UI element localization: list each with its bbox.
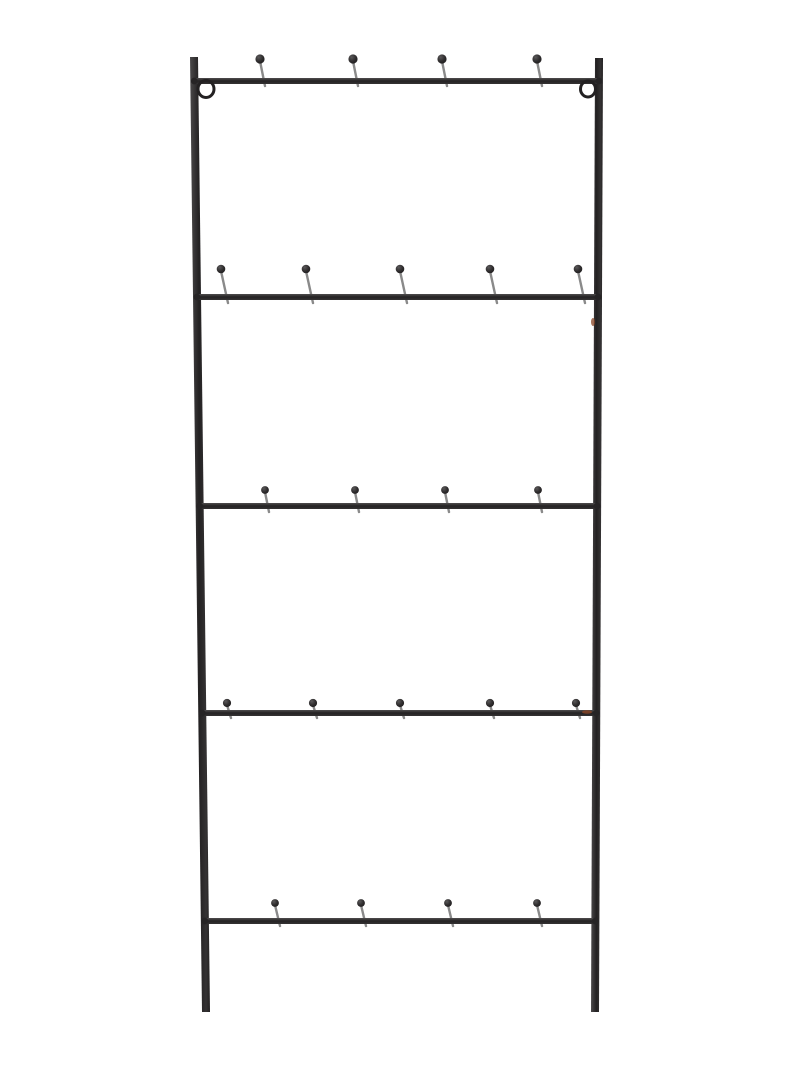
weld-cap: [596, 78, 603, 85]
rust-mark: [591, 318, 595, 326]
hook-ball: [437, 54, 446, 63]
hook-ball: [486, 265, 495, 274]
hook-ball: [534, 486, 542, 494]
hook-ball: [302, 265, 311, 274]
weld-cap: [592, 918, 599, 925]
hook-ball: [357, 899, 365, 907]
hook-ball: [396, 265, 405, 274]
hook-ball: [348, 54, 357, 63]
hook-bar-3: [198, 503, 599, 509]
hook-ball: [223, 699, 231, 707]
hook-ball: [351, 486, 359, 494]
weld-cap: [201, 918, 208, 925]
weld-cap: [191, 78, 198, 85]
hook-ball: [486, 699, 494, 707]
left-rail: [190, 57, 210, 1012]
hook-ball: [532, 54, 541, 63]
hook-ball: [217, 265, 226, 274]
hook-ball: [261, 486, 269, 494]
hook-bar-5: [203, 918, 598, 924]
weld-cap: [196, 503, 203, 510]
hook-bar-1: [192, 78, 601, 84]
weld-cap: [594, 503, 601, 510]
right-rail: [591, 58, 603, 1012]
weld-cap: [593, 710, 600, 717]
hook-ball: [574, 265, 583, 274]
hook-rack-svg: [0, 0, 800, 1070]
hook-ball: [533, 899, 541, 907]
hook-bar-2: [195, 294, 600, 300]
hook-ball: [309, 699, 317, 707]
hook-ball: [572, 699, 580, 707]
hook-bar-4: [200, 710, 598, 716]
product-photo: [0, 0, 800, 1070]
hook-ball: [271, 899, 279, 907]
hook-ball: [396, 699, 404, 707]
hook-ball: [441, 486, 449, 494]
weld-cap: [194, 294, 201, 301]
hook-ball: [444, 899, 452, 907]
weld-cap: [199, 710, 206, 717]
rust-mark: [582, 710, 592, 714]
hook-ball: [255, 54, 264, 63]
weld-cap: [595, 294, 602, 301]
